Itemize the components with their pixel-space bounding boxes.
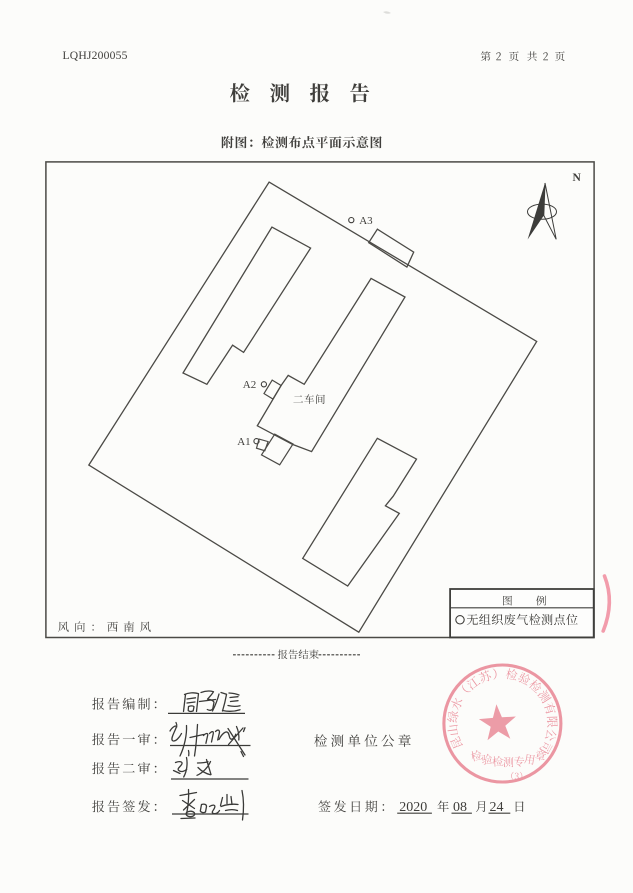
svg-text:LQHJ200055: LQHJ200055	[63, 49, 128, 62]
svg-text:A2: A2	[243, 379, 256, 391]
svg-text:A1: A1	[237, 436, 250, 448]
svg-text:N: N	[573, 172, 582, 184]
svg-text:A3: A3	[359, 215, 373, 227]
